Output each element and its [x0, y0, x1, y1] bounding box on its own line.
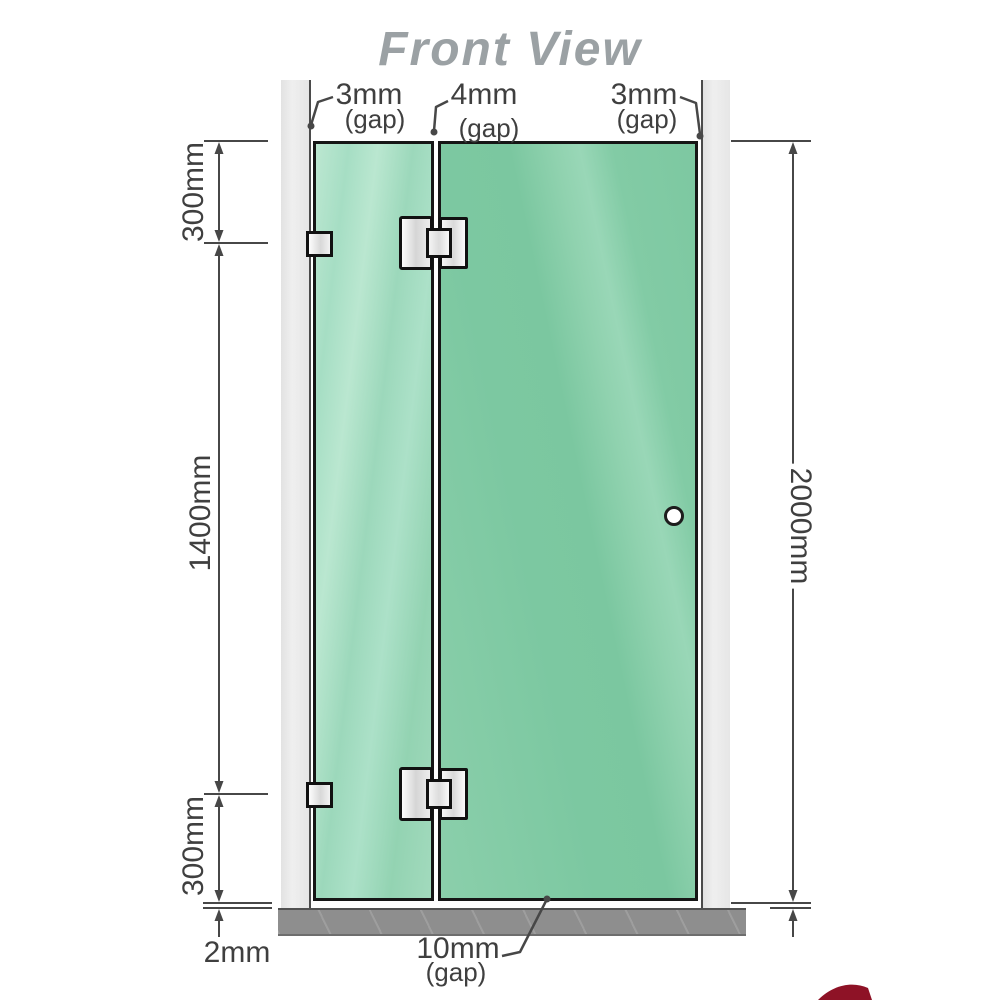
hinge-top: [399, 216, 468, 270]
gap-label-middle-qualifier: (gap): [459, 115, 520, 141]
wall-bracket-top: [306, 231, 333, 257]
dim-label-2000mm: 2000mm: [784, 464, 816, 589]
page-title: Front View: [260, 22, 760, 77]
door-handle-knob: [664, 506, 684, 526]
dim-label-300mm-top: 300mm: [179, 142, 209, 242]
dim-label-10mm-qualifier: (gap): [426, 959, 487, 985]
dim-label-2mm: 2mm: [204, 938, 271, 968]
diagram-canvas: Front View: [0, 0, 1000, 1000]
gap-label-right-qualifier: (gap): [617, 106, 678, 132]
logo-fragment: [818, 985, 872, 1000]
wall-bracket-bottom: [306, 782, 333, 808]
right-wall: [701, 80, 730, 908]
hinge-top-pivot-tab: [426, 228, 452, 258]
door-glass-panel: [438, 141, 698, 901]
dim-label-1400mm: 1400mm: [186, 455, 216, 572]
hinge-bottom-pivot-tab: [426, 779, 452, 809]
hinge-bottom: [399, 767, 468, 821]
floor: [278, 908, 746, 936]
gap-label-left-qualifier: (gap): [345, 106, 406, 132]
gap-label-middle: 4mm: [451, 80, 518, 110]
dim-label-300mm-bottom: 300mm: [179, 796, 209, 896]
